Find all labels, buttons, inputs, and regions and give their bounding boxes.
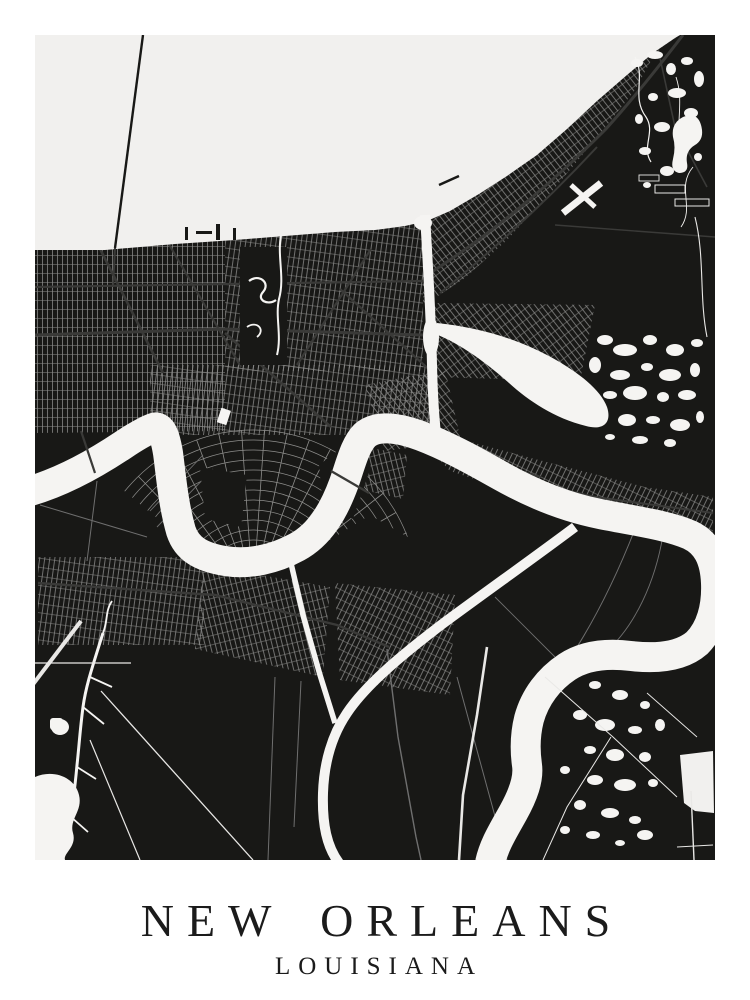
audubon-park bbox=[200, 467, 247, 527]
poster-caption: NEW ORLEANS LOUISIANA bbox=[0, 860, 750, 981]
poster: NEW ORLEANS LOUISIANA bbox=[0, 0, 750, 1000]
bay-water-southeast bbox=[680, 751, 714, 813]
poster-title: NEW ORLEANS bbox=[7, 894, 750, 947]
map-frame bbox=[35, 35, 715, 860]
poster-subtitle: LOUISIANA bbox=[4, 953, 750, 981]
new-orleans-map bbox=[35, 35, 715, 860]
